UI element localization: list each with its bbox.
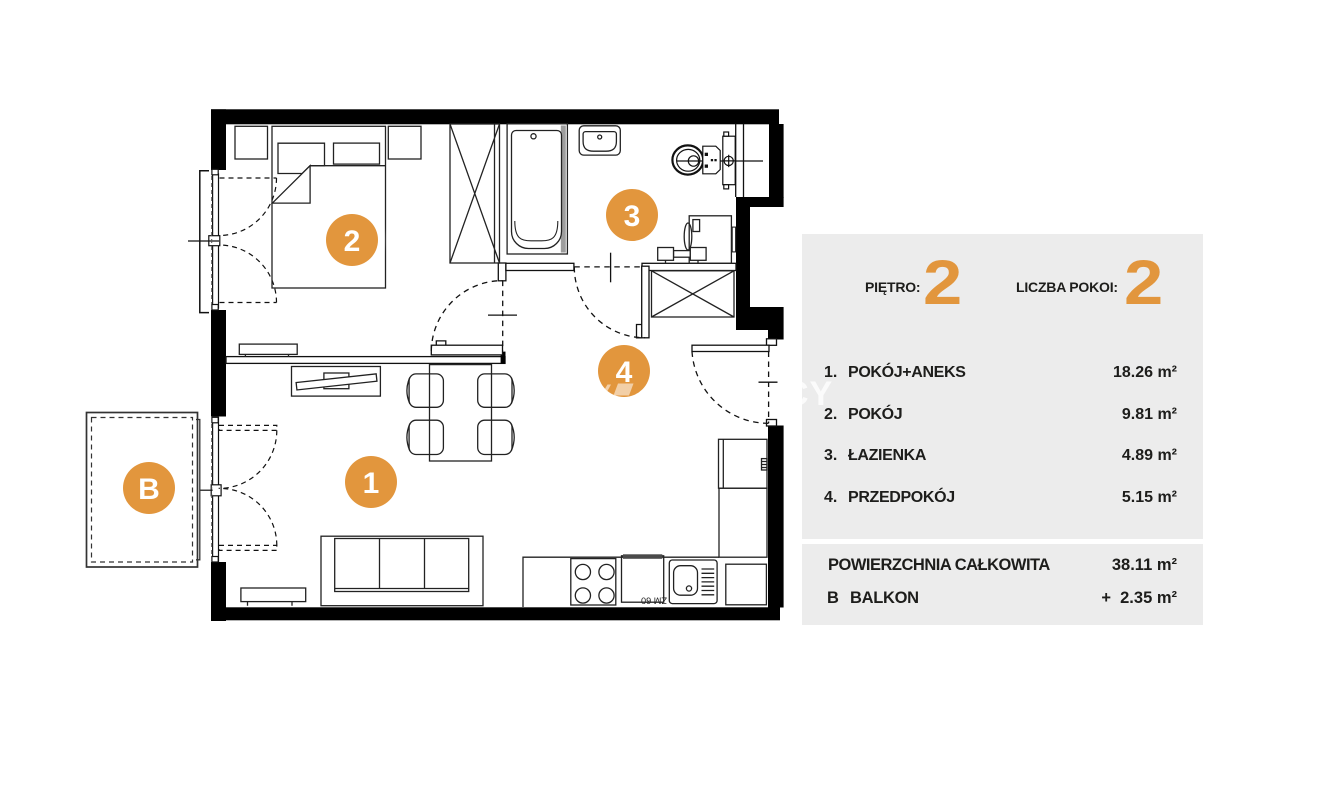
svg-text:3: 3 bbox=[624, 200, 641, 233]
svg-text:B: B bbox=[138, 473, 160, 506]
svg-text:2: 2 bbox=[344, 225, 361, 258]
svg-text:ZM 60: ZM 60 bbox=[641, 596, 667, 606]
svg-text:1: 1 bbox=[363, 467, 380, 500]
